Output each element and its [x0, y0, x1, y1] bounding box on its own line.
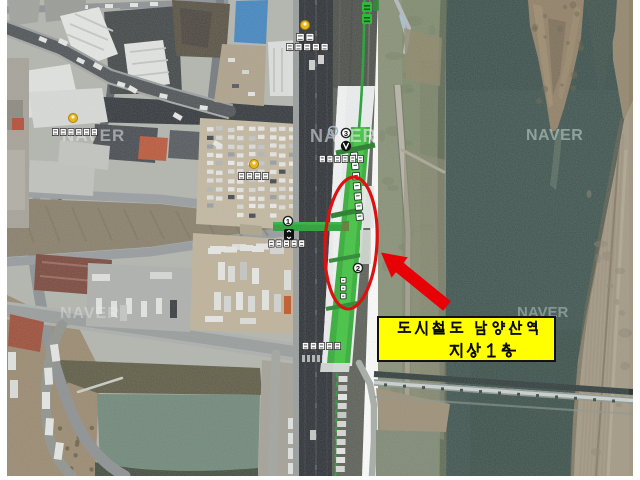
svg-text:NAVER: NAVER [526, 127, 583, 144]
svg-text:1: 1 [286, 217, 290, 226]
svg-text:3: 3 [344, 129, 348, 138]
svg-text:2: 2 [356, 264, 360, 273]
